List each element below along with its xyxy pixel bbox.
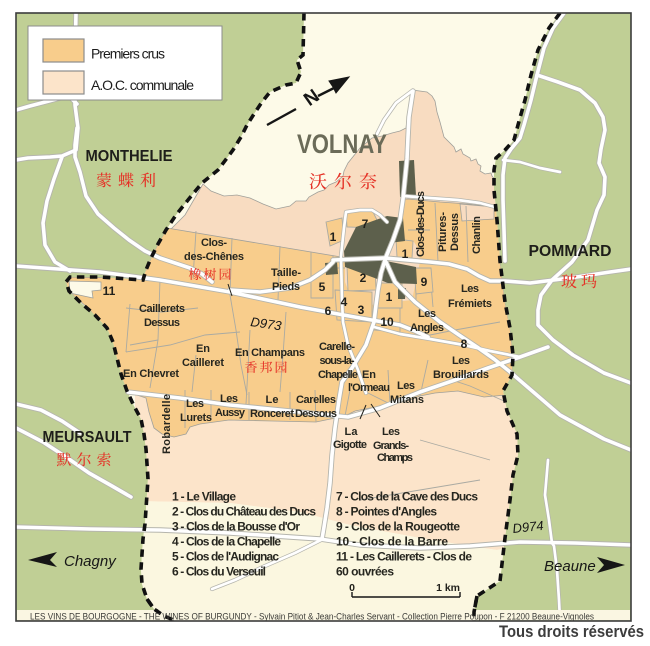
svg-text:Les: Les (397, 380, 415, 392)
svg-text:VOLNAY: VOLNAY (297, 129, 387, 159)
svg-text:11 - Les Caillerets - Clos de: 11 - Les Caillerets - Clos de (336, 550, 472, 564)
svg-text:A.O.C. communale: A.O.C. communale (91, 77, 194, 93)
svg-text:11: 11 (103, 284, 116, 298)
svg-text:POMMARD: POMMARD (529, 243, 612, 260)
svg-text:4 - Clos de la Chapelle: 4 - Clos de la Chapelle (172, 535, 281, 549)
svg-text:En: En (362, 369, 376, 381)
svg-text:2: 2 (360, 271, 367, 285)
svg-text:Les: Les (418, 308, 436, 320)
svg-text:En Chevret: En Chevret (123, 368, 179, 380)
svg-text:Les: Les (186, 398, 204, 410)
svg-text:La: La (345, 426, 359, 438)
svg-text:9 - Clos de la Rougeotte: 9 - Clos de la Rougeotte (336, 520, 460, 534)
svg-text:6: 6 (325, 304, 332, 318)
svg-text:1 km: 1 km (436, 582, 460, 594)
svg-text:Dessous: Dessous (295, 408, 337, 420)
svg-text:2 - Clos du Château des Ducs: 2 - Clos du Château des Ducs (172, 505, 316, 519)
svg-text:9: 9 (421, 275, 428, 289)
svg-text:10: 10 (380, 315, 394, 329)
svg-text:En Champans: En Champans (235, 347, 305, 359)
svg-text:Chapelle: Chapelle (318, 369, 358, 381)
svg-text:MEURSAULT: MEURSAULT (43, 429, 132, 446)
svg-text:Lurets: Lurets (180, 412, 212, 424)
svg-text:sous-la-: sous-la- (320, 355, 355, 367)
svg-text:Tous droits réservés: Tous droits réservés (499, 623, 644, 641)
svg-text:Les: Les (452, 355, 470, 367)
svg-text:Ronceret: Ronceret (250, 408, 294, 420)
svg-text:10 - Clos de la Barre: 10 - Clos de la Barre (336, 535, 448, 549)
svg-text:Les: Les (382, 426, 400, 438)
svg-text:Aussy: Aussy (215, 407, 246, 419)
svg-text:Cailleret: Cailleret (182, 357, 224, 369)
svg-text:Pitures-: Pitures- (437, 212, 449, 252)
svg-text:Le: Le (266, 394, 279, 406)
svg-text:Premiers crus: Premiers crus (91, 46, 165, 62)
svg-text:Gigotte: Gigotte (333, 439, 367, 451)
svg-text:3 - Clos de la Bousse d'Or: 3 - Clos de la Bousse d'Or (172, 520, 300, 534)
svg-text:Les: Les (220, 393, 238, 405)
svg-text:Brouillards: Brouillards (433, 369, 489, 381)
svg-text:Angles: Angles (410, 322, 444, 334)
svg-text:Beaune: Beaune (544, 558, 596, 575)
svg-text:8 - Pointes d'Angles: 8 - Pointes d'Angles (336, 505, 437, 519)
svg-text:Champs: Champs (377, 452, 413, 464)
svg-text:Caillerets: Caillerets (139, 303, 185, 315)
svg-text:4: 4 (341, 295, 348, 309)
svg-text:7: 7 (362, 217, 369, 231)
svg-text:Robardelle: Robardelle (161, 394, 173, 454)
svg-text:Clos-: Clos- (201, 237, 227, 249)
svg-text:Taille-: Taille- (271, 267, 301, 279)
svg-text:1: 1 (386, 290, 393, 304)
svg-text:Pieds: Pieds (272, 281, 300, 293)
svg-text:Chanlin: Chanlin (471, 216, 483, 254)
svg-text:En: En (196, 343, 210, 355)
svg-text:Clos-des-Ducs: Clos-des-Ducs (415, 191, 427, 257)
svg-text:Carelle-: Carelle- (319, 341, 355, 353)
svg-text:6 - Clos du Verseuil: 6 - Clos du Verseuil (172, 565, 266, 579)
svg-text:Dessus: Dessus (449, 213, 461, 251)
svg-text:Dessus: Dessus (144, 317, 180, 329)
svg-text:8: 8 (461, 337, 468, 351)
svg-text:1: 1 (330, 230, 337, 244)
svg-text:3: 3 (358, 303, 365, 317)
svg-text:l'Ormeau: l'Ormeau (348, 382, 390, 394)
svg-text:5 - Clos de l'Audignac: 5 - Clos de l'Audignac (172, 550, 279, 564)
svg-text:Mitans: Mitans (390, 394, 424, 406)
svg-text:MONTHELIE: MONTHELIE (86, 148, 173, 165)
svg-text:0: 0 (349, 582, 355, 594)
svg-text:7 - Clos de la Cave des Ducs: 7 - Clos de la Cave des Ducs (336, 490, 478, 504)
svg-text:Carelles: Carelles (296, 394, 336, 406)
svg-text:1 - Le Village: 1 - Le Village (172, 490, 236, 504)
svg-text:Grands-: Grands- (373, 440, 409, 452)
svg-text:60 ouvrées: 60 ouvrées (336, 565, 394, 579)
svg-text:des-Chênes: des-Chênes (184, 251, 244, 263)
svg-text:1: 1 (402, 247, 409, 261)
svg-text:Frémiets: Frémiets (448, 298, 492, 310)
svg-text:LES VINS DE BOURGOGNE - THE WI: LES VINS DE BOURGOGNE - THE WINES OF BUR… (30, 612, 594, 622)
svg-text:Chagny: Chagny (64, 553, 117, 570)
svg-text:5: 5 (319, 280, 326, 294)
svg-text:Les: Les (461, 283, 479, 295)
